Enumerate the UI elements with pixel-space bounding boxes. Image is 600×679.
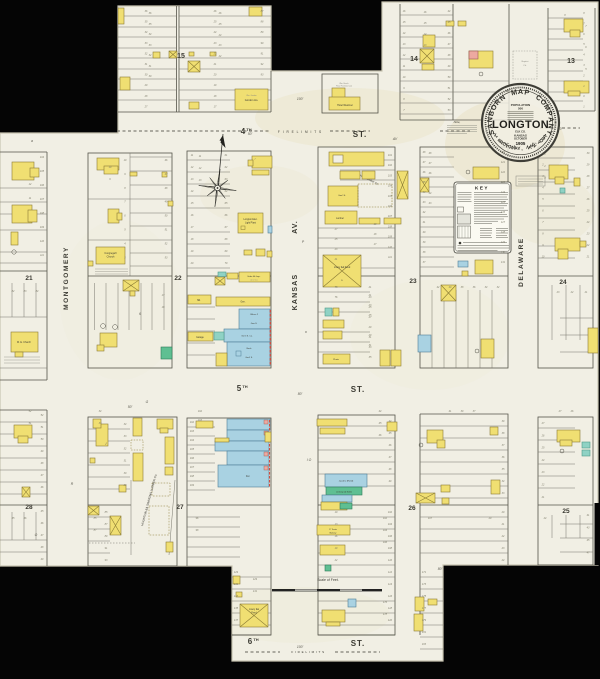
svg-text:177: 177 bbox=[422, 607, 427, 610]
svg-text:181: 181 bbox=[422, 631, 427, 634]
svg-text:23: 23 bbox=[213, 42, 217, 45]
svg-text:Mil.: Mil. bbox=[197, 300, 201, 302]
svg-text:109: 109 bbox=[388, 236, 393, 239]
svg-text:25: 25 bbox=[334, 238, 338, 241]
svg-text:165: 165 bbox=[190, 448, 195, 451]
svg-text:Gordon Ho.: Gordon Ho. bbox=[245, 98, 259, 102]
svg-text:106: 106 bbox=[388, 205, 393, 208]
svg-text:100': 100' bbox=[297, 97, 304, 101]
svg-text:173: 173 bbox=[422, 583, 427, 586]
svg-text:26: 26 bbox=[570, 410, 574, 413]
svg-text:6: 6 bbox=[139, 312, 141, 316]
svg-text:164: 164 bbox=[190, 439, 195, 442]
svg-text:21: 21 bbox=[334, 258, 338, 261]
svg-text:175: 175 bbox=[422, 595, 427, 598]
svg-text:14: 14 bbox=[410, 56, 418, 63]
svg-text:ST.: ST. bbox=[351, 639, 366, 648]
svg-text:102: 102 bbox=[388, 511, 393, 514]
svg-text:24: 24 bbox=[559, 279, 567, 286]
svg-text:20: 20 bbox=[488, 517, 492, 520]
svg-text:Hotel Westmer: Hotel Westmer bbox=[337, 104, 353, 107]
svg-text:163: 163 bbox=[190, 430, 195, 433]
svg-text:27: 27 bbox=[368, 316, 372, 319]
svg-text:F I R E L I M I T S: F I R E L I M I T S bbox=[278, 130, 322, 134]
svg-text:13: 13 bbox=[567, 58, 575, 65]
svg-text:24: 24 bbox=[213, 31, 217, 34]
svg-text:104: 104 bbox=[388, 185, 393, 188]
svg-text:27: 27 bbox=[334, 228, 338, 231]
svg-text:105: 105 bbox=[388, 195, 393, 198]
svg-text:29: 29 bbox=[368, 326, 372, 329]
svg-text:21: 21 bbox=[368, 286, 372, 289]
svg-text:167: 167 bbox=[190, 466, 195, 469]
svg-text:25: 25 bbox=[541, 447, 545, 450]
svg-text:29: 29 bbox=[586, 164, 590, 167]
svg-text:178: 178 bbox=[383, 613, 388, 616]
svg-text:23: 23 bbox=[586, 233, 590, 236]
svg-text:28: 28 bbox=[144, 95, 148, 98]
svg-text:121: 121 bbox=[501, 161, 506, 164]
svg-text:80': 80' bbox=[298, 392, 303, 396]
svg-text:A: A bbox=[518, 87, 523, 96]
svg-text:F I R E L I M I T S: F I R E L I M I T S bbox=[291, 650, 324, 654]
svg-text:Church: Church bbox=[107, 256, 115, 259]
svg-text:120: 120 bbox=[501, 151, 506, 154]
svg-text:108: 108 bbox=[388, 547, 393, 550]
svg-text:22: 22 bbox=[501, 535, 505, 538]
svg-text:123: 123 bbox=[501, 181, 506, 184]
svg-text:Scale: Scale bbox=[504, 143, 510, 145]
svg-text:129: 129 bbox=[253, 578, 258, 581]
svg-text:Longton Elec.: Longton Elec. bbox=[243, 218, 257, 221]
svg-text:26: 26 bbox=[586, 198, 590, 201]
svg-text:500: 500 bbox=[518, 107, 523, 111]
svg-text:104: 104 bbox=[40, 156, 45, 159]
svg-text:22: 22 bbox=[586, 244, 590, 247]
svg-text:Feed: Feed bbox=[251, 613, 257, 615]
svg-text:104: 104 bbox=[388, 523, 393, 526]
svg-text:171: 171 bbox=[422, 571, 427, 574]
svg-text:114: 114 bbox=[388, 583, 393, 586]
svg-text:129: 129 bbox=[501, 241, 506, 244]
svg-text:25: 25 bbox=[213, 21, 217, 24]
svg-text:20: 20 bbox=[190, 262, 194, 265]
svg-text:135: 135 bbox=[234, 607, 239, 610]
svg-text:163: 163 bbox=[198, 419, 203, 422]
svg-text:124: 124 bbox=[501, 191, 506, 194]
svg-text:I O: I O bbox=[307, 458, 312, 462]
svg-text:101: 101 bbox=[388, 154, 393, 157]
svg-text:176: 176 bbox=[383, 601, 388, 604]
svg-text:o: o bbox=[305, 330, 307, 334]
svg-text:TH: TH bbox=[253, 637, 258, 642]
svg-text:ST.: ST. bbox=[351, 385, 366, 394]
svg-text:25: 25 bbox=[586, 210, 590, 213]
svg-text:KANSAS: KANSAS bbox=[514, 133, 527, 137]
svg-text:166: 166 bbox=[190, 457, 195, 460]
svg-text:25: 25 bbox=[368, 306, 372, 309]
svg-text:Jacob's (Hotel): Jacob's (Hotel) bbox=[339, 480, 354, 483]
svg-text:110: 110 bbox=[40, 240, 45, 243]
svg-text:28: 28 bbox=[25, 504, 33, 511]
svg-text:131: 131 bbox=[501, 261, 506, 264]
svg-text:Offices 2: Offices 2 bbox=[250, 314, 259, 316]
svg-text:Fur.: Fur. bbox=[246, 475, 250, 478]
svg-text:130: 130 bbox=[501, 251, 506, 254]
svg-text:Gen'l S.: Gen'l S. bbox=[338, 195, 346, 197]
svg-text:25: 25 bbox=[562, 508, 570, 515]
svg-text:20: 20 bbox=[213, 74, 217, 77]
svg-text:Baptist: Baptist bbox=[522, 60, 529, 63]
svg-text:27: 27 bbox=[586, 187, 590, 190]
svg-text:AV: AV bbox=[392, 137, 398, 141]
svg-text:MONTGOMERY: MONTGOMERY bbox=[63, 246, 70, 310]
svg-text:118: 118 bbox=[388, 607, 393, 610]
svg-text:G: G bbox=[146, 400, 149, 404]
svg-text:23: 23 bbox=[501, 547, 505, 550]
svg-text:15: 15 bbox=[177, 53, 185, 60]
svg-text:(in 2 st.): (in 2 st.) bbox=[251, 279, 258, 282]
svg-text:111: 111 bbox=[40, 254, 44, 257]
svg-text:27: 27 bbox=[558, 410, 562, 413]
svg-text:26: 26 bbox=[541, 434, 545, 437]
svg-text:TH: TH bbox=[242, 384, 247, 389]
svg-text:26: 26 bbox=[213, 10, 217, 13]
svg-text:Gen'l S. Co.: Gen'l S. Co. bbox=[241, 336, 253, 338]
svg-text:Gen.S.: Gen.S. bbox=[251, 323, 258, 325]
svg-text:a: a bbox=[31, 139, 33, 143]
svg-text:108: 108 bbox=[388, 225, 393, 228]
svg-text:Lumber: Lumber bbox=[336, 217, 344, 220]
svg-text:Light Plant: Light Plant bbox=[245, 222, 256, 225]
svg-text:21: 21 bbox=[501, 523, 505, 526]
svg-text:Livery &&: Livery && bbox=[249, 608, 259, 611]
svg-text:131: 131 bbox=[253, 590, 258, 593]
svg-text:Note,: Note, bbox=[454, 120, 461, 124]
svg-text:Flour Feed && Coal: Flour Feed && Coal bbox=[336, 86, 352, 88]
svg-text:28: 28 bbox=[586, 175, 590, 178]
svg-text:LONGTON: LONGTON bbox=[492, 119, 549, 131]
svg-text:120: 120 bbox=[388, 619, 393, 622]
svg-text:26: 26 bbox=[218, 12, 222, 15]
svg-text:DELAWARE: DELAWARE bbox=[518, 237, 525, 287]
svg-text:109: 109 bbox=[40, 226, 45, 229]
svg-text:Garage: Garage bbox=[196, 336, 204, 339]
svg-text:KEY: KEY bbox=[475, 186, 489, 191]
svg-text:50': 50' bbox=[248, 132, 253, 136]
svg-text:5: 5 bbox=[237, 384, 242, 393]
svg-text:100': 100' bbox=[297, 645, 304, 649]
svg-text:20: 20 bbox=[501, 511, 505, 514]
svg-text:Hdw && Imp.: Hdw && Imp. bbox=[248, 276, 261, 278]
svg-text:107: 107 bbox=[40, 198, 45, 201]
svg-text:23: 23 bbox=[541, 471, 545, 474]
svg-text:21: 21 bbox=[25, 275, 33, 282]
svg-text:127: 127 bbox=[501, 221, 506, 224]
svg-text:125: 125 bbox=[501, 201, 506, 204]
svg-text:P. Tasto: P. Tasto bbox=[329, 528, 337, 531]
svg-text:Scale of Feet.: Scale of Feet. bbox=[317, 578, 339, 582]
svg-text:105: 105 bbox=[40, 170, 45, 173]
svg-text:137: 137 bbox=[234, 619, 239, 622]
svg-text:50 ft.: 50 ft. bbox=[532, 142, 537, 145]
svg-text:22: 22 bbox=[570, 291, 574, 294]
svg-text:Ch.: Ch. bbox=[523, 65, 527, 67]
svg-text:183: 183 bbox=[422, 643, 427, 646]
svg-text:21: 21 bbox=[213, 63, 217, 66]
svg-text:29: 29 bbox=[123, 484, 127, 487]
svg-text:27: 27 bbox=[176, 504, 184, 511]
svg-text:Gen.: Gen. bbox=[241, 302, 246, 304]
svg-text:103: 103 bbox=[388, 174, 393, 177]
svg-text:21: 21 bbox=[541, 496, 545, 499]
svg-text:126: 126 bbox=[501, 211, 506, 214]
svg-text:21: 21 bbox=[584, 291, 588, 294]
svg-text:21: 21 bbox=[586, 256, 590, 259]
svg-text:27: 27 bbox=[541, 422, 545, 425]
svg-text:102: 102 bbox=[388, 164, 393, 167]
svg-text:Gen'l S.: Gen'l S. bbox=[245, 357, 253, 359]
svg-text:22: 22 bbox=[541, 484, 545, 487]
svg-text:O: O bbox=[35, 533, 38, 537]
svg-text:23: 23 bbox=[218, 44, 222, 47]
svg-text:106: 106 bbox=[388, 535, 393, 538]
svg-text:102: 102 bbox=[383, 517, 388, 520]
svg-text:23: 23 bbox=[368, 296, 372, 299]
svg-text:80': 80' bbox=[438, 567, 443, 571]
svg-text:162: 162 bbox=[190, 421, 195, 424]
svg-text:104: 104 bbox=[383, 529, 388, 532]
svg-text:KANSAS: KANSAS bbox=[292, 274, 299, 311]
svg-text:24: 24 bbox=[543, 517, 547, 520]
svg-text:116: 116 bbox=[388, 595, 393, 598]
svg-text:112: 112 bbox=[388, 571, 393, 574]
svg-text:24: 24 bbox=[541, 459, 545, 462]
svg-text:29: 29 bbox=[144, 84, 148, 87]
svg-text:169: 169 bbox=[190, 484, 195, 487]
svg-text:162: 162 bbox=[198, 410, 203, 413]
svg-text:106: 106 bbox=[40, 184, 45, 187]
svg-text:Livery && Feed: Livery && Feed bbox=[334, 266, 351, 269]
svg-text:22: 22 bbox=[213, 52, 217, 55]
svg-text:131: 131 bbox=[234, 583, 239, 586]
svg-text:23: 23 bbox=[409, 278, 417, 285]
svg-text:24: 24 bbox=[218, 34, 222, 37]
svg-text:22: 22 bbox=[334, 559, 338, 562]
svg-text:122: 122 bbox=[501, 171, 506, 174]
svg-text:107: 107 bbox=[388, 215, 393, 218]
svg-text:108: 108 bbox=[40, 212, 45, 215]
svg-text:128: 128 bbox=[501, 231, 506, 234]
svg-text:1905: 1905 bbox=[516, 141, 526, 146]
svg-text:50': 50' bbox=[128, 405, 133, 409]
svg-text:133: 133 bbox=[234, 595, 239, 598]
svg-text:129: 129 bbox=[234, 571, 239, 574]
svg-text:27: 27 bbox=[144, 105, 148, 108]
svg-text:23: 23 bbox=[556, 291, 560, 294]
svg-text:4: 4 bbox=[241, 127, 246, 136]
svg-text:AV: AV bbox=[505, 89, 511, 93]
svg-text:Photo: Photo bbox=[333, 358, 339, 361]
svg-text:23: 23 bbox=[334, 248, 338, 251]
svg-text:106: 106 bbox=[383, 541, 388, 544]
svg-text:I: I bbox=[106, 442, 107, 446]
svg-text:22: 22 bbox=[218, 55, 222, 58]
svg-text:24: 24 bbox=[586, 221, 590, 224]
svg-text:110: 110 bbox=[388, 559, 393, 562]
svg-text:Lindsey && Noble: Lindsey && Noble bbox=[336, 492, 353, 494]
svg-text:AV.: AV. bbox=[292, 220, 299, 234]
svg-text:25: 25 bbox=[218, 23, 222, 26]
svg-text:Wm. Gordon: Wm. Gordon bbox=[246, 95, 256, 97]
svg-text:22: 22 bbox=[174, 275, 182, 282]
svg-text:168: 168 bbox=[190, 475, 195, 478]
svg-text:107: 107 bbox=[428, 517, 433, 520]
svg-text:6: 6 bbox=[248, 637, 253, 646]
svg-text:111: 111 bbox=[388, 256, 392, 259]
svg-text:110: 110 bbox=[388, 246, 393, 249]
svg-text:26: 26 bbox=[408, 505, 416, 512]
svg-text:30': 30' bbox=[558, 127, 563, 131]
svg-text:24: 24 bbox=[501, 559, 505, 562]
svg-text:M. E. Church: M. E. Church bbox=[17, 341, 32, 344]
svg-text:179: 179 bbox=[422, 619, 427, 622]
